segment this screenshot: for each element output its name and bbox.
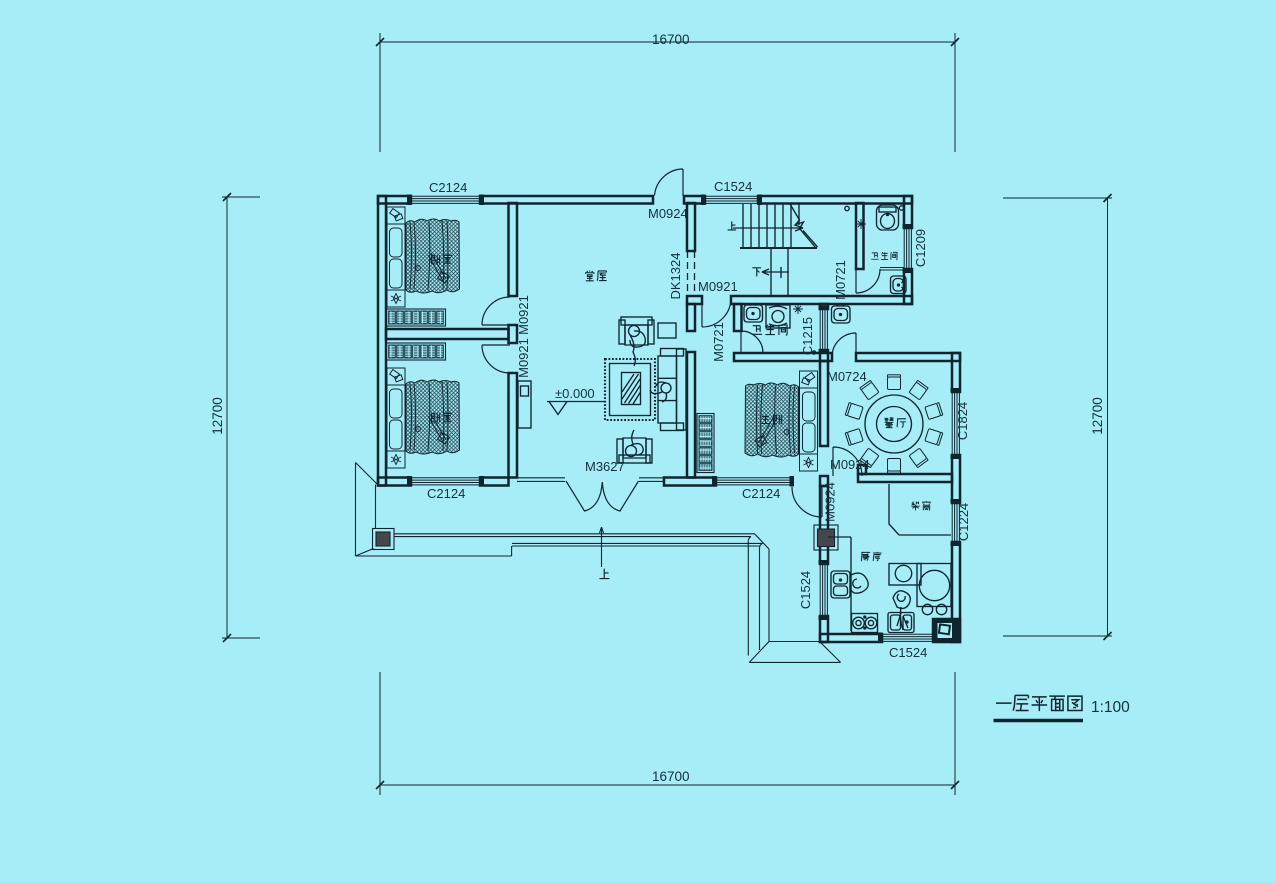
svg-text:C1209: C1209 <box>913 229 928 267</box>
svg-text:M0921: M0921 <box>698 279 738 294</box>
svg-text:DK1324: DK1324 <box>668 253 683 300</box>
svg-text:M0924: M0924 <box>823 482 838 522</box>
svg-text:C2124: C2124 <box>742 486 780 501</box>
svg-text:C1824: C1824 <box>955 402 970 440</box>
svg-text:M0921: M0921 <box>516 295 531 335</box>
svg-text:C1524: C1524 <box>889 645 927 660</box>
svg-text:12700: 12700 <box>1090 397 1105 435</box>
svg-text:M3627: M3627 <box>585 459 625 474</box>
svg-text:M0924: M0924 <box>648 206 688 221</box>
svg-text:16700: 16700 <box>652 769 690 784</box>
svg-text:M0721: M0721 <box>711 322 726 362</box>
svg-text:M0924: M0924 <box>830 457 870 472</box>
svg-text:M0721: M0721 <box>833 260 848 300</box>
svg-text:16700: 16700 <box>652 32 690 47</box>
svg-text:±0.000: ±0.000 <box>555 386 595 401</box>
svg-text:C1524: C1524 <box>714 179 752 194</box>
svg-text:C2124: C2124 <box>429 180 467 195</box>
svg-text:C1215: C1215 <box>800 317 815 355</box>
svg-text:12700: 12700 <box>210 397 225 435</box>
svg-text:C2124: C2124 <box>427 486 465 501</box>
svg-text:C1524: C1524 <box>798 571 813 609</box>
svg-text:1:100: 1:100 <box>1091 699 1130 716</box>
svg-text:M0724: M0724 <box>827 369 867 384</box>
svg-text:C1224: C1224 <box>956 503 971 541</box>
svg-text:M0921: M0921 <box>516 338 531 378</box>
